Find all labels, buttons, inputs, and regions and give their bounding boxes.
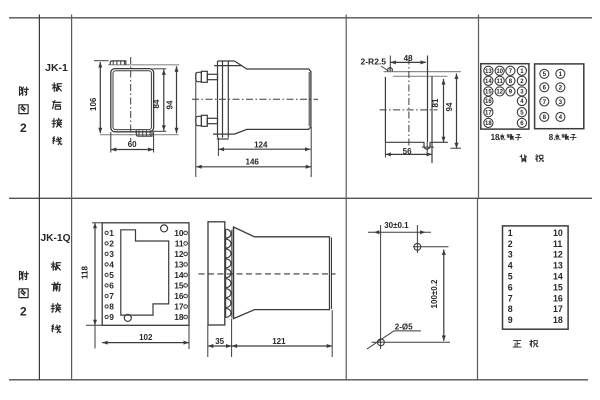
svg-text:16: 16: [485, 99, 492, 105]
svg-text:3: 3: [559, 99, 563, 106]
svg-text:2: 2: [109, 239, 114, 249]
svg-text:12: 12: [496, 90, 503, 96]
svg-text:9: 9: [508, 315, 513, 325]
svg-text:6: 6: [543, 85, 547, 92]
svg-text:56: 56: [403, 147, 412, 156]
svg-text:7: 7: [508, 293, 513, 303]
svg-text:10: 10: [496, 69, 503, 75]
svg-text:15: 15: [485, 90, 492, 96]
svg-text:2: 2: [559, 85, 563, 92]
svg-text:12: 12: [553, 250, 563, 260]
svg-text:14: 14: [553, 272, 563, 282]
svg-text:11: 11: [497, 79, 504, 85]
svg-text:12: 12: [174, 249, 184, 259]
svg-text:6: 6: [508, 282, 513, 292]
svg-text:146: 146: [246, 158, 260, 167]
svg-text:100±0.2: 100±0.2: [430, 279, 439, 308]
svg-text:1: 1: [559, 71, 563, 78]
svg-text:5: 5: [508, 272, 513, 282]
svg-text:2: 2: [508, 239, 513, 249]
svg-text:15: 15: [553, 282, 563, 292]
svg-text:3: 3: [109, 249, 114, 259]
svg-text:11: 11: [175, 239, 184, 249]
svg-text:121: 121: [272, 337, 286, 346]
svg-text:17: 17: [553, 304, 563, 314]
svg-text:16: 16: [553, 293, 563, 303]
svg-text:30±0.1: 30±0.1: [384, 221, 409, 230]
svg-text:18: 18: [485, 121, 492, 127]
svg-text:7: 7: [543, 99, 547, 106]
svg-text:2: 2: [20, 304, 27, 318]
svg-text:118: 118: [80, 265, 89, 278]
svg-text:6: 6: [109, 281, 114, 291]
svg-text:11: 11: [553, 239, 562, 249]
svg-text:4: 4: [508, 261, 513, 271]
svg-text:14: 14: [485, 79, 492, 85]
svg-text:35: 35: [215, 337, 224, 346]
svg-text:2-Ø5: 2-Ø5: [395, 322, 413, 331]
svg-text:106: 106: [89, 97, 98, 111]
svg-text:8: 8: [508, 304, 513, 314]
svg-text:94: 94: [165, 100, 174, 109]
svg-text:JK-1Q: JK-1Q: [40, 233, 70, 244]
svg-text:18: 18: [491, 133, 500, 142]
svg-text:3: 3: [508, 250, 513, 260]
svg-text:8: 8: [543, 114, 547, 121]
svg-text:2-R2.5: 2-R2.5: [361, 56, 387, 66]
svg-text:5: 5: [543, 71, 547, 78]
svg-text:4: 4: [109, 260, 114, 270]
svg-text:13: 13: [485, 69, 492, 75]
svg-text:9: 9: [109, 312, 114, 322]
svg-text:15: 15: [174, 281, 184, 291]
svg-text:81: 81: [431, 98, 440, 107]
svg-text:2: 2: [20, 121, 27, 135]
svg-text:8: 8: [549, 133, 554, 142]
svg-text:102: 102: [139, 333, 153, 342]
svg-text:16: 16: [174, 291, 184, 301]
svg-text:13: 13: [174, 260, 184, 270]
svg-text:18: 18: [553, 315, 563, 325]
svg-text:8: 8: [109, 302, 114, 312]
svg-text:4: 4: [559, 114, 563, 121]
svg-text:10: 10: [553, 228, 563, 238]
svg-text:18: 18: [174, 312, 184, 322]
svg-text:13: 13: [553, 261, 563, 271]
svg-text:124: 124: [254, 140, 268, 149]
svg-text:14: 14: [174, 270, 184, 280]
svg-text:84: 84: [152, 99, 161, 108]
svg-text:1: 1: [508, 228, 513, 238]
svg-text:48: 48: [404, 54, 413, 63]
svg-text:JK-1: JK-1: [45, 62, 68, 74]
svg-text:17: 17: [485, 110, 492, 116]
svg-text:10: 10: [174, 228, 184, 238]
svg-text:5: 5: [109, 270, 114, 280]
svg-text:60: 60: [128, 140, 137, 149]
svg-text:7: 7: [109, 291, 114, 301]
svg-text:1: 1: [109, 228, 114, 238]
svg-text:94: 94: [445, 102, 454, 111]
svg-text:17: 17: [174, 302, 184, 312]
